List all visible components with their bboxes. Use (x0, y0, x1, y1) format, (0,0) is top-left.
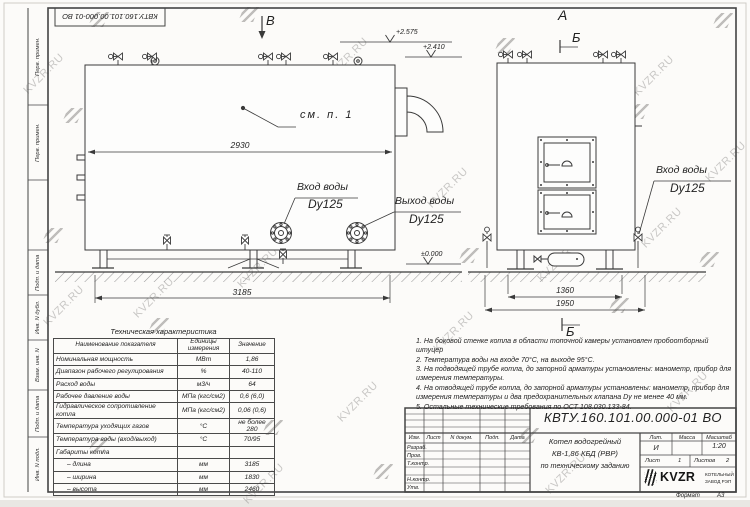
row-name: – ширина (54, 471, 178, 483)
tech-table: Наименование показателя Единицы измерени… (53, 338, 275, 496)
row-name: Габариты котла (54, 446, 178, 458)
margin-label-vzam-inv: Взам. инв. N (28, 340, 48, 390)
row-value: 64 (230, 378, 275, 390)
row-value: не более 280 (230, 418, 275, 434)
row-units: °С (178, 434, 230, 446)
dim-1360: 1360 (539, 286, 591, 295)
table-row: Гидравлическое сопротивление котлаМПа (к… (54, 403, 275, 419)
doc-number: КВТУ.160.101.00.000-01 ВО (532, 410, 734, 425)
row-units: % (178, 366, 230, 378)
elevation-zero: ±0.000 (421, 251, 442, 258)
sheet-value: 1 (678, 458, 681, 464)
section-mark-v: В (266, 13, 275, 28)
row-units: МПа (кгс/см2) (178, 403, 230, 419)
note-3: 3. На подводящей трубе котла, до запорно… (416, 365, 737, 384)
sheet-label: Лист (645, 458, 660, 464)
row-value (230, 446, 275, 458)
kvzr-coil-icon (644, 469, 657, 486)
note-2: 2. Температура воды на входе 70°С, на вы… (416, 356, 737, 365)
tech-characteristics: Техническая характеристика Наименование … (53, 327, 274, 496)
scale-value: 1:20 (702, 443, 736, 450)
table-row: – длинамм3185 (54, 459, 275, 471)
row-name: Температура уходящих газов (54, 418, 178, 434)
inlet-water-dn: Dy125 (308, 197, 343, 211)
margin-label-perv-primen: Перв. примен. (28, 8, 48, 105)
margin-label-perv-primen2: Перв. примен. (28, 105, 48, 180)
row-value: 0,6 (6,0) (230, 391, 275, 403)
row-value: 70/95 (230, 434, 275, 446)
row-value: 0,06 (0,6) (230, 403, 275, 419)
row-value: 1830 (230, 471, 275, 483)
lit-label: Лит. (640, 435, 672, 441)
row-units: °С (178, 418, 230, 434)
row-razrab: Разраб. (407, 445, 427, 451)
col-doc: N докум. (443, 435, 480, 441)
table-row: Температура уходящих газов°Сне более 280 (54, 418, 275, 434)
section-mark-b-top: Б (572, 30, 580, 45)
table-row: Диапазон рабочего регулирования%40-110 (54, 366, 275, 378)
tech-table-title: Техническая характеристика (53, 327, 274, 336)
outlet-water-label: Выход воды (395, 195, 454, 207)
row-name: – высота (54, 483, 178, 495)
row-name: Расход воды (54, 378, 178, 390)
kvzr-logo-text: KVZR (660, 470, 695, 484)
row-tkontr: Т.контр. (407, 461, 429, 467)
row-units: МПа (кгс/см2) (178, 391, 230, 403)
row-units: мм (178, 483, 230, 495)
view-left (55, 16, 462, 303)
format-label: Формат (676, 493, 700, 499)
inlet-water-label-right: Вход воды (656, 164, 707, 176)
margin-label-inv-dubl: Инв. N дубл. (28, 295, 48, 340)
elevation-2410: +2.410 (423, 44, 445, 51)
margin-label-inv-podl: Инв. N подл. (28, 437, 48, 492)
row-name: Температура воды (вход/выход) (54, 434, 178, 446)
tech-col-value: Значение (230, 339, 275, 354)
dim-1950: 1950 (539, 299, 591, 308)
row-utv: Утв. (407, 485, 420, 491)
lit-value: И (640, 443, 672, 452)
drawing-sheet: KVZR.RU KVZR.RU KVZR.RU KVZR.RU KVZR.RU … (0, 0, 750, 500)
row-units: МВт (178, 353, 230, 365)
inlet-water-dn-right: Dy125 (670, 181, 705, 195)
row-units: м3/ч (178, 378, 230, 390)
table-row: Габариты котла (54, 446, 275, 458)
row-name: Гидравлическое сопротивление котла (54, 403, 178, 419)
row-units: мм (178, 471, 230, 483)
outlet-water-dn: Dy125 (409, 212, 444, 226)
margin-label-podp-data2: Подп. и дата (28, 390, 48, 437)
kvzr-logo-sub1: КОТЕЛЬНЫЙ (705, 472, 734, 477)
kvzr-logo-sub2: ЗАВОД РЭП (705, 479, 731, 484)
row-value: 1,86 (230, 353, 275, 365)
scale-label: Масштаб (702, 435, 736, 441)
row-value: 3185 (230, 459, 275, 471)
elevation-2575: +2.575 (396, 29, 418, 36)
table-row: – ширинамм1830 (54, 471, 275, 483)
top-stamp-code: КВТУ.160.101.00.000-01 ВО (55, 8, 165, 26)
row-name: Номинальная мощность (54, 353, 178, 365)
see-note-callout: см. п. 1 (300, 109, 353, 121)
view-mark-a: А (558, 7, 567, 23)
doc-title-line3: по техническому заданию (532, 461, 638, 470)
table-row: Температура воды (вход/выход)°С70/95 (54, 434, 275, 446)
format-value: А3 (717, 493, 724, 499)
row-units: мм (178, 459, 230, 471)
table-row: Номинальная мощностьМВт1,86 (54, 353, 275, 365)
table-row: Расход водым3/ч64 (54, 378, 275, 390)
doc-title-line2: КВ-1,86 КБД (РВР) (532, 449, 638, 458)
margin-label-podp-data: Подп. и дата (28, 250, 48, 295)
doc-title-line1: Котел водогрейный (532, 437, 638, 446)
row-value: 40-110 (230, 366, 275, 378)
tech-col-units: Единицы измерения (178, 339, 230, 354)
tech-col-name: Наименование показателя (54, 339, 178, 354)
col-list: Лист (424, 435, 443, 441)
row-units (178, 446, 230, 458)
inlet-water-label: Вход воды (297, 181, 348, 193)
dim-2930: 2930 (214, 140, 266, 150)
sheets-value: 2 (726, 458, 729, 464)
sheets-label: Листов (694, 458, 715, 464)
row-nkontr: Н.контр. (407, 477, 430, 483)
note-4: 4. На отводящей трубе котла, до запорной… (416, 384, 737, 403)
mass-label: Масса (672, 435, 702, 441)
col-data: Дата (505, 435, 530, 441)
row-value: 2460 (230, 483, 275, 495)
table-row: Рабочее давление водыМПа (кгс/см2)0,6 (6… (54, 391, 275, 403)
col-izm: Изм. (405, 435, 424, 441)
col-podp: Подп. (480, 435, 505, 441)
table-row: – высотамм2460 (54, 483, 275, 495)
row-name: Рабочее давление воды (54, 391, 178, 403)
technical-notes: 1. На боковой стенке котла в области топ… (416, 337, 737, 412)
dim-3185: 3185 (216, 287, 268, 297)
row-prov: Пров. (407, 453, 422, 459)
note-1: 1. На боковой стенке котла в области топ… (416, 337, 737, 356)
row-name: Диапазон рабочего регулирования (54, 366, 178, 378)
row-name: – длина (54, 459, 178, 471)
